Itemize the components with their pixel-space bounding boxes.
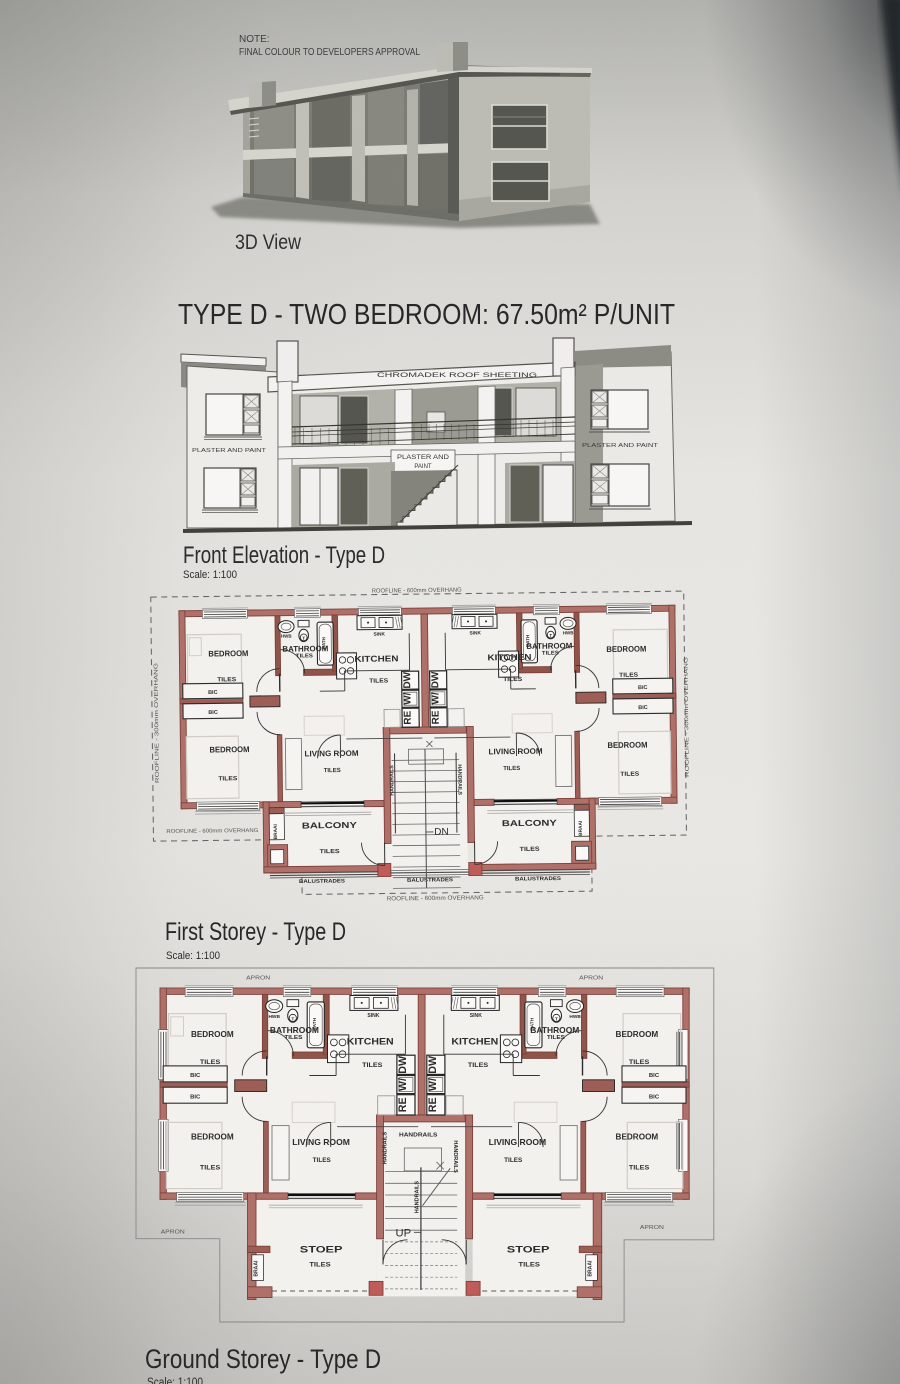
svg-text:BATHROOM: BATHROOM — [530, 1025, 579, 1035]
svg-text:ROOFLINE - 600mm OVERHANG: ROOFLINE - 600mm OVERHANG — [166, 828, 258, 835]
svg-text:HANDRAILS: HANDRAILS — [383, 1131, 389, 1164]
svg-text:Scale: 1:100: Scale: 1:100 — [183, 569, 237, 581]
svg-text:SINK: SINK — [373, 631, 385, 637]
svg-text:ROOFLINE - 600mm OVERHANG: ROOFLINE - 600mm OVERHANG — [372, 588, 462, 595]
svg-text:TILES: TILES — [313, 1157, 332, 1164]
svg-text:TILES: TILES — [520, 847, 540, 853]
svg-text:BATHROOM: BATHROOM — [270, 1025, 319, 1035]
svg-text:RE: RE — [431, 710, 442, 724]
svg-text:BEDROOM: BEDROOM — [208, 649, 248, 658]
svg-text:SINK: SINK — [367, 1013, 379, 1019]
svg-text:Front Elevation - Type D: Front Elevation - Type D — [183, 542, 385, 569]
svg-text:TILES: TILES — [217, 677, 236, 683]
svg-text:RE: RE — [397, 1097, 409, 1112]
svg-text:NOTE:: NOTE: — [239, 34, 270, 45]
svg-text:BALUSTRADES: BALUSTRADES — [299, 878, 346, 885]
svg-text:T: T — [549, 633, 552, 638]
svg-text:BRAAI: BRAAI — [273, 823, 279, 839]
svg-text:TILES: TILES — [362, 1062, 383, 1069]
svg-text:APRON: APRON — [579, 976, 603, 982]
svg-text:STOEP: STOEP — [507, 1245, 550, 1255]
svg-text:DN: DN — [434, 827, 449, 838]
svg-text:DW: DW — [402, 671, 413, 688]
svg-text:APRON: APRON — [246, 976, 270, 982]
svg-text:BATHROOM: BATHROOM — [526, 641, 572, 651]
svg-text:TILES: TILES — [620, 772, 639, 778]
svg-text:3D View: 3D View — [235, 231, 302, 254]
svg-text:TILES: TILES — [309, 1262, 331, 1269]
svg-text:BIC: BIC — [190, 1073, 201, 1079]
svg-text:W/: W/ — [427, 1078, 439, 1091]
svg-text:Scale: 1:100: Scale: 1:100 — [166, 950, 220, 962]
svg-text:CHROMADEK ROOF SHEETING: CHROMADEK ROOF SHEETING — [377, 373, 538, 379]
svg-text:BIC: BIC — [649, 1073, 660, 1079]
svg-text:BRAAI: BRAAI — [588, 1260, 594, 1277]
svg-text:SINK: SINK — [470, 1013, 482, 1019]
svg-text:W/: W/ — [397, 1078, 409, 1091]
svg-text:PLASTER AND: PLASTER AND — [397, 455, 450, 461]
svg-text:TILES: TILES — [503, 766, 520, 772]
svg-text:RE: RE — [403, 710, 414, 724]
svg-text:HWB: HWB — [268, 1014, 280, 1020]
svg-text:LIVING ROOM: LIVING ROOM — [292, 1137, 350, 1147]
svg-text:TILES: TILES — [547, 1035, 565, 1041]
svg-text:PLASTER AND PAINT: PLASTER AND PAINT — [582, 443, 659, 449]
svg-text:HANDRAILS: HANDRAILS — [399, 1132, 438, 1138]
svg-text:LIVING ROOM: LIVING ROOM — [304, 749, 358, 759]
svg-text:UP: UP — [396, 1228, 412, 1240]
svg-text:BALUSTRADES: BALUSTRADES — [515, 876, 562, 883]
svg-text:APRON: APRON — [161, 1229, 185, 1235]
svg-text:First Storey - Type D: First Storey - Type D — [165, 918, 346, 946]
svg-text:PAINT: PAINT — [414, 464, 432, 470]
svg-text:BIC: BIC — [208, 690, 218, 696]
svg-text:KITCHEN: KITCHEN — [354, 653, 398, 663]
svg-text:HWB: HWB — [281, 634, 293, 639]
svg-text:TILES: TILES — [468, 1062, 489, 1069]
svg-text:BRAAI: BRAAI — [578, 820, 584, 836]
svg-text:LIVING ROOM: LIVING ROOM — [488, 747, 542, 757]
svg-text:TILES: TILES — [519, 1262, 541, 1269]
svg-text:LIVING ROOM: LIVING ROOM — [489, 1137, 547, 1147]
svg-text:BALUSTRADES: BALUSTRADES — [407, 877, 454, 884]
svg-text:T: T — [302, 636, 305, 641]
svg-text:DW: DW — [397, 1055, 409, 1074]
svg-text:BIC: BIC — [638, 705, 648, 711]
svg-text:BEDROOM: BEDROOM — [191, 1029, 234, 1039]
svg-text:DW: DW — [430, 671, 441, 688]
svg-text:TILES: TILES — [542, 651, 559, 657]
svg-text:BALCONY: BALCONY — [302, 820, 358, 831]
svg-text:TILES: TILES — [324, 768, 341, 774]
svg-text:BALCONY: BALCONY — [502, 818, 558, 829]
svg-text:TYPE D - TWO BEDROOM: 67.50m²: TYPE D - TWO BEDROOM: 67.50m² P/UNIT — [178, 299, 675, 331]
svg-text:STOEP: STOEP — [300, 1245, 343, 1255]
svg-text:SINK: SINK — [469, 630, 481, 636]
svg-text:BIC: BIC — [190, 1094, 201, 1100]
svg-text:W/: W/ — [430, 692, 441, 705]
svg-text:BEDROOM: BEDROOM — [616, 1029, 659, 1039]
svg-text:KITCHEN: KITCHEN — [451, 1037, 498, 1047]
svg-text:TILES: TILES — [629, 1164, 650, 1171]
svg-text:TILES: TILES — [200, 1164, 221, 1171]
svg-text:ROOFLINE - 600mm OVERHANG: ROOFLINE - 600mm OVERHANG — [387, 895, 484, 902]
svg-text:DW: DW — [427, 1055, 439, 1074]
svg-text:TILES: TILES — [284, 1035, 302, 1041]
svg-text:BEDROOM: BEDROOM — [191, 1132, 234, 1142]
svg-text:HANDRAILS: HANDRAILS — [456, 764, 462, 795]
svg-text:HWB: HWB — [563, 630, 575, 635]
svg-text:TILES: TILES — [296, 653, 313, 659]
svg-text:KITCHEN: KITCHEN — [347, 1037, 394, 1047]
svg-text:TILES: TILES — [629, 1059, 650, 1066]
svg-text:TILES: TILES — [503, 677, 522, 683]
svg-text:BEDROOM: BEDROOM — [209, 745, 249, 754]
svg-text:BIC: BIC — [638, 685, 648, 691]
svg-text:HANDRAILS: HANDRAILS — [452, 1140, 458, 1173]
svg-text:T: T — [291, 1017, 294, 1023]
svg-text:W/: W/ — [402, 692, 413, 705]
svg-text:BEDROOM: BEDROOM — [607, 741, 647, 750]
svg-text:T: T — [555, 1017, 558, 1023]
svg-text:APRON: APRON — [640, 1225, 664, 1231]
svg-text:TILES: TILES — [619, 673, 638, 679]
svg-text:TILES: TILES — [200, 1059, 221, 1066]
svg-text:Scale: 1:100: Scale: 1:100 — [147, 1377, 203, 1384]
svg-text:BEDROOM: BEDROOM — [616, 1132, 659, 1142]
svg-text:RE: RE — [427, 1097, 439, 1112]
svg-text:TILES: TILES — [218, 776, 237, 782]
svg-text:TILES: TILES — [504, 1157, 523, 1164]
svg-text:HWB: HWB — [569, 1014, 581, 1020]
svg-text:BIC: BIC — [208, 710, 218, 716]
svg-text:PLASTER AND PAINT: PLASTER AND PAINT — [192, 448, 267, 454]
svg-text:KITCHEN: KITCHEN — [487, 652, 531, 662]
svg-text:HANDRAILS: HANDRAILS — [389, 765, 395, 796]
svg-text:BIC: BIC — [649, 1094, 660, 1100]
svg-text:FINAL COLOUR TO DEVELOPERS APP: FINAL COLOUR TO DEVELOPERS APPROVAL — [239, 46, 420, 58]
svg-text:BRAAI: BRAAI — [254, 1260, 260, 1277]
svg-text:BATHROOM: BATHROOM — [282, 644, 328, 654]
svg-text:TILES: TILES — [369, 678, 388, 684]
svg-text:Ground Storey - Type D: Ground Storey - Type D — [145, 1344, 381, 1374]
svg-text:TILES: TILES — [320, 849, 340, 855]
svg-text:BEDROOM: BEDROOM — [606, 645, 646, 654]
svg-text:HANDRAILS: HANDRAILS — [415, 1181, 421, 1214]
